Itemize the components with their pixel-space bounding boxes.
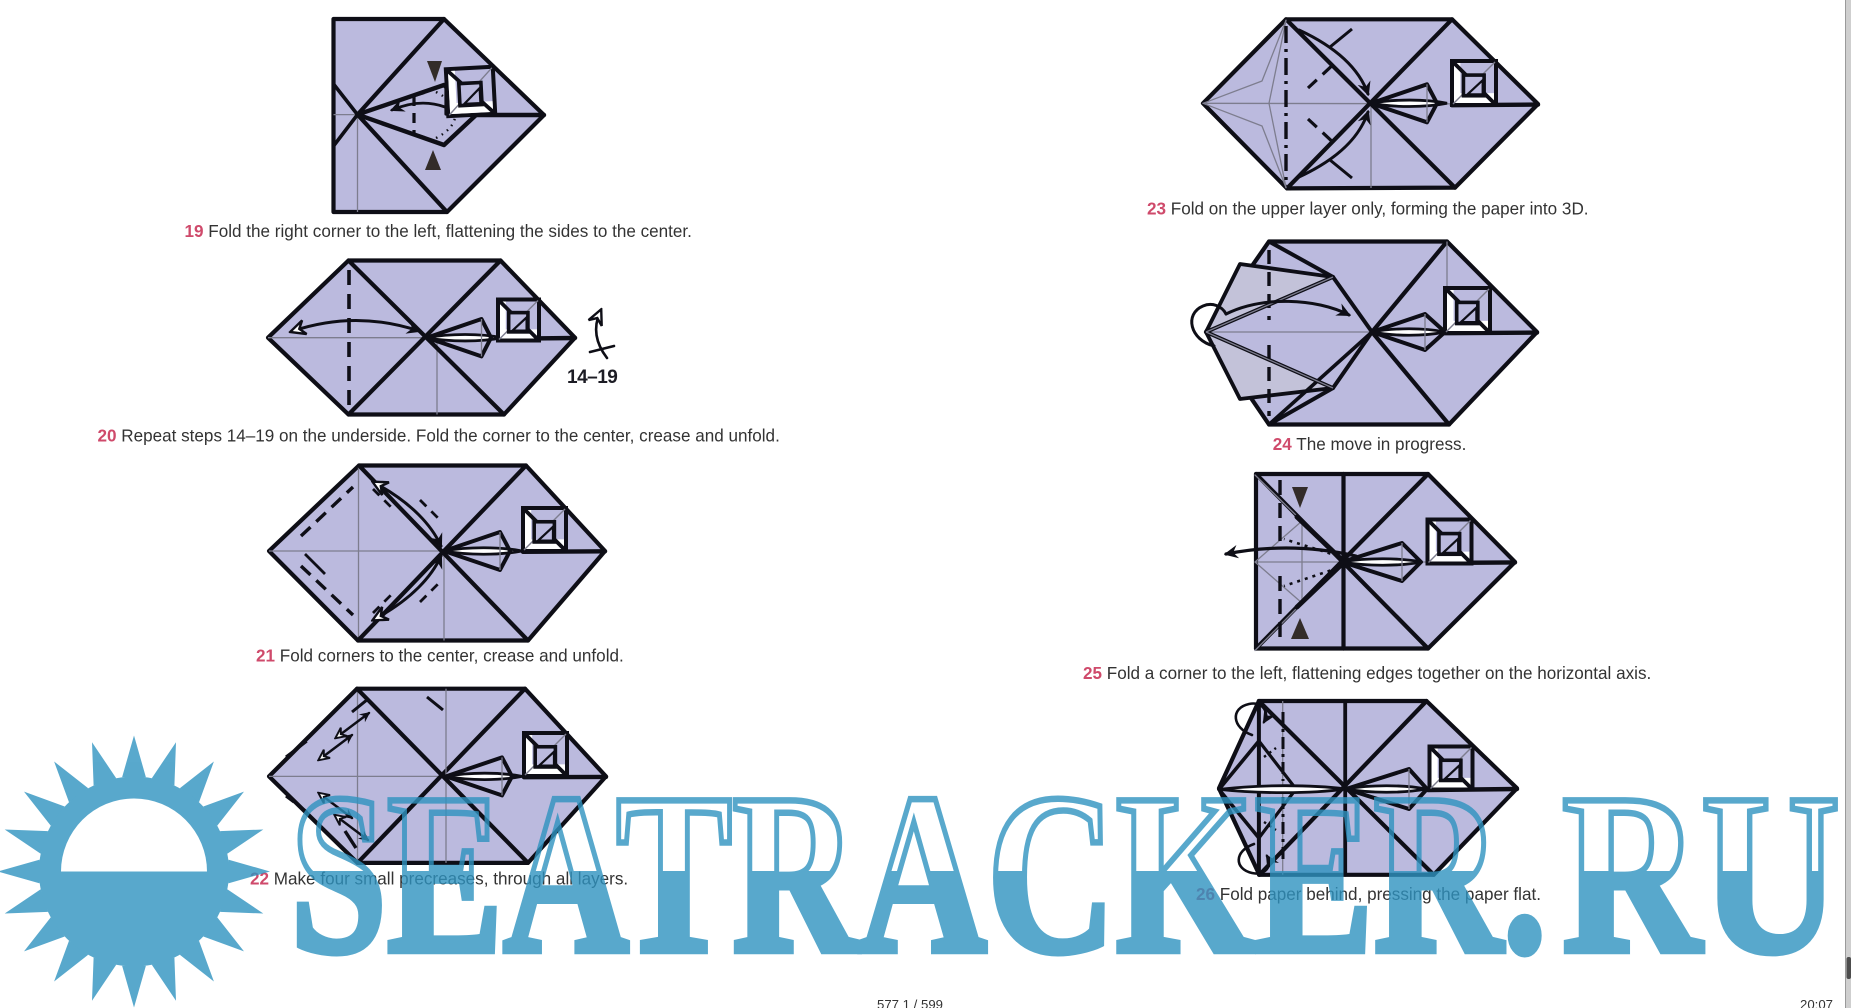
svg-text:20 Repeat steps 14–19 on the u: 20 Repeat steps 14–19 on the underside. … [98, 427, 780, 446]
svg-text:19 Fold the right corner to th: 19 Fold the right corner to the left, fl… [185, 222, 692, 241]
svg-text:21 Fold corners to the center,: 21 Fold corners to the center, crease an… [256, 647, 624, 666]
svg-text:14–19: 14–19 [567, 367, 617, 388]
svg-text:25 Fold a corner to the left,: 25 Fold a corner to the left, flattening… [1083, 664, 1651, 683]
svg-text:23 Fold on the upper layer onl: 23 Fold on the upper layer only, forming… [1147, 200, 1589, 219]
svg-text:20:07: 20:07 [1800, 997, 1833, 1008]
svg-text:24 The move in progress.: 24 The move in progress. [1273, 435, 1467, 454]
svg-text:577 1 / 599: 577 1 / 599 [877, 997, 943, 1008]
